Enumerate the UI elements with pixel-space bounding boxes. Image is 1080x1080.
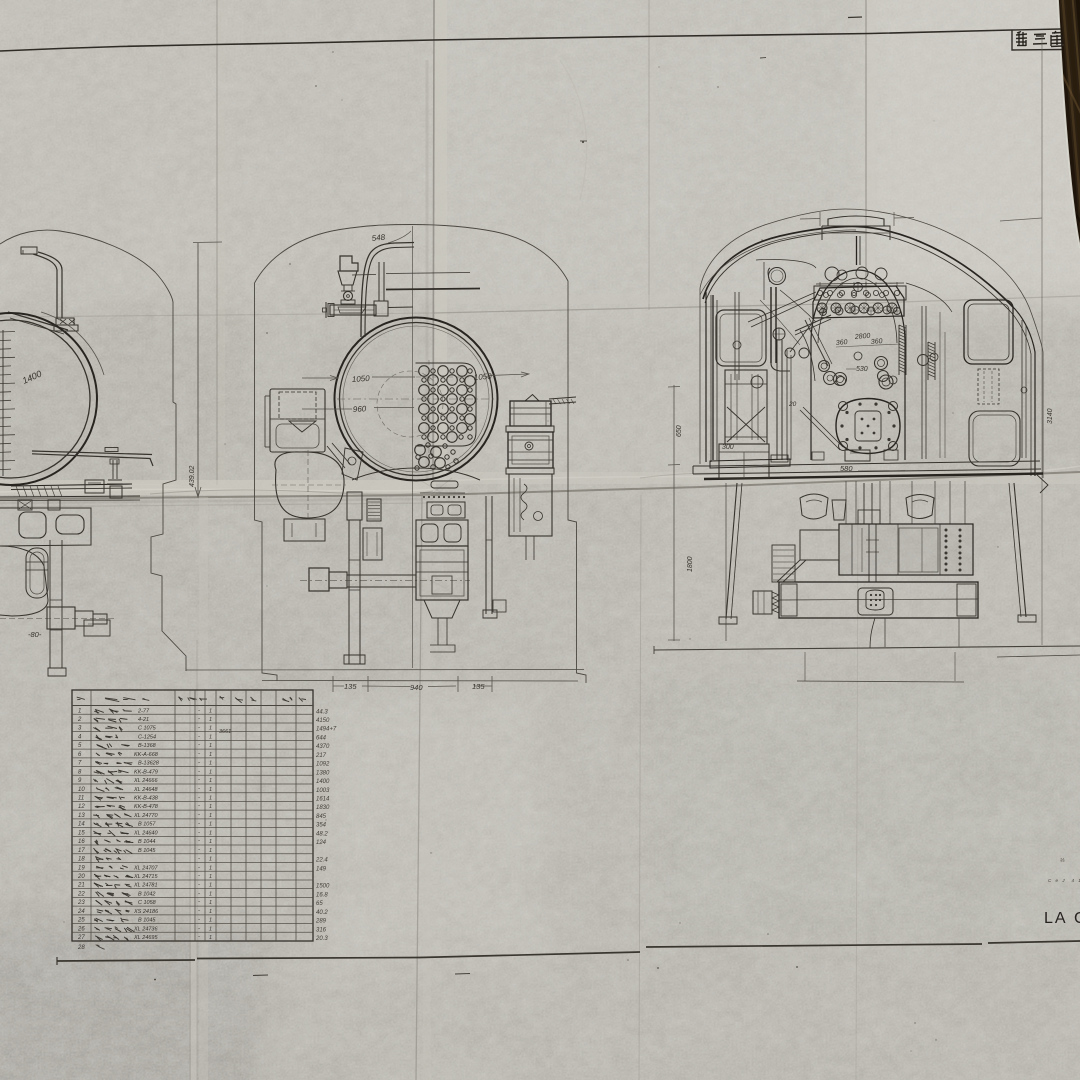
svg-text:13: 13	[78, 813, 85, 819]
svg-text:20: 20	[77, 874, 85, 880]
svg-text:17: 17	[78, 848, 85, 854]
svg-text:3661: 3661	[219, 729, 231, 735]
svg-text:1830: 1830	[316, 805, 330, 811]
svg-text:-: -	[198, 821, 200, 827]
svg-text:1: 1	[209, 804, 212, 810]
svg-text:KK-B-479: KK-B-479	[134, 769, 158, 775]
svg-text:4-21: 4-21	[138, 717, 149, 723]
svg-text:1: 1	[209, 708, 212, 714]
svg-text:-: -	[198, 935, 200, 941]
svg-text:439.02: 439.02	[189, 465, 196, 487]
svg-text:1: 1	[209, 839, 212, 845]
svg-text:C-1254: C-1254	[138, 734, 156, 740]
svg-text:21: 21	[77, 883, 85, 889]
svg-text:22.4: 22.4	[315, 858, 328, 864]
svg-text:-: -	[198, 804, 200, 810]
svg-text:1: 1	[209, 813, 212, 819]
svg-text:C e J 4 1 R: C e J 4 1 R	[1048, 878, 1080, 883]
svg-text:18: 18	[78, 857, 85, 863]
svg-text:B-1368: B-1368	[138, 743, 157, 749]
svg-text:XL 24736: XL 24736	[133, 926, 158, 932]
svg-text:580: 580	[840, 464, 853, 473]
svg-text:65: 65	[316, 901, 323, 907]
svg-text:1: 1	[209, 761, 212, 767]
svg-text:316: 316	[316, 927, 327, 933]
svg-text:XS 24186: XS 24186	[133, 909, 159, 915]
svg-text:-: -	[198, 769, 200, 775]
svg-text:-: -	[198, 786, 200, 792]
svg-text:B 1045: B 1045	[138, 848, 156, 854]
svg-text:11: 11	[78, 796, 84, 802]
svg-text:149: 149	[316, 866, 327, 872]
svg-text:XL 24715: XL 24715	[133, 874, 158, 880]
svg-text:2: 2	[77, 717, 82, 723]
svg-text:-: -	[198, 847, 200, 853]
svg-text:-: -	[198, 839, 200, 845]
svg-text:⅓: ⅓	[1060, 858, 1065, 864]
svg-text:940: 940	[410, 683, 423, 692]
svg-text:1: 1	[209, 848, 212, 854]
svg-text:135: 135	[344, 682, 357, 691]
svg-text:3140: 3140	[1047, 408, 1054, 424]
svg-text:1: 1	[209, 743, 212, 749]
svg-text:-80-: -80-	[28, 630, 42, 639]
svg-text:354: 354	[316, 823, 327, 829]
svg-text:1: 1	[209, 918, 212, 924]
svg-text:XL 24781: XL 24781	[133, 883, 158, 889]
svg-text:10: 10	[78, 787, 85, 793]
svg-text:B-13628: B-13628	[138, 761, 160, 767]
svg-text:644: 644	[316, 735, 327, 741]
svg-text:KK-A-668: KK-A-668	[134, 752, 159, 758]
svg-text:19: 19	[78, 865, 85, 871]
svg-text:300: 300	[722, 444, 734, 451]
svg-text:4150: 4150	[316, 718, 330, 724]
svg-text:1: 1	[209, 891, 212, 897]
svg-text:1003: 1003	[316, 788, 330, 794]
svg-text:289: 289	[315, 919, 327, 925]
svg-text:-: -	[198, 778, 200, 784]
svg-text:124: 124	[316, 840, 327, 846]
svg-text:1: 1	[209, 830, 212, 836]
svg-text:-: -	[198, 812, 200, 818]
svg-text:-: -	[198, 865, 200, 871]
svg-text:XL 24707: XL 24707	[133, 865, 158, 871]
svg-text:24: 24	[77, 909, 85, 915]
svg-text:B 1042: B 1042	[138, 891, 155, 897]
svg-text:548: 548	[371, 233, 386, 243]
svg-text:16: 16	[78, 839, 85, 845]
svg-text:XL 24640: XL 24640	[133, 830, 158, 836]
svg-text:16.8: 16.8	[316, 892, 328, 898]
svg-text:XL 24695: XL 24695	[133, 935, 158, 941]
svg-text:40.2: 40.2	[316, 910, 328, 916]
svg-text:1092: 1092	[316, 762, 330, 768]
svg-text:XL 24770: XL 24770	[133, 813, 158, 819]
svg-text:1: 1	[209, 734, 212, 740]
svg-text:2800: 2800	[854, 333, 871, 341]
svg-text:-: -	[198, 725, 200, 731]
svg-text:1: 1	[209, 726, 212, 732]
svg-text:B 1044: B 1044	[138, 839, 155, 845]
svg-text:48.2: 48.2	[316, 831, 328, 837]
svg-text:1800: 1800	[687, 556, 694, 572]
svg-text:217: 217	[315, 753, 327, 759]
svg-text:-: -	[198, 882, 200, 888]
svg-text:25: 25	[77, 918, 85, 924]
svg-text:360: 360	[836, 339, 848, 347]
svg-text:1494+7: 1494+7	[316, 727, 337, 733]
svg-text:KK-B-478: KK-B-478	[134, 804, 159, 810]
svg-text:-: -	[198, 734, 200, 740]
svg-text:KK-B-438: KK-B-438	[134, 796, 159, 802]
svg-text:-: -	[198, 891, 200, 897]
svg-text:-: -	[198, 830, 200, 836]
svg-text:530: 530	[856, 366, 868, 373]
svg-text:-: -	[198, 751, 200, 757]
svg-text:1: 1	[209, 778, 212, 784]
svg-text:XL 24666: XL 24666	[133, 778, 158, 784]
svg-text:650: 650	[676, 425, 683, 437]
svg-text:-: -	[198, 795, 200, 801]
svg-text:1: 1	[209, 822, 212, 828]
svg-text:-: -	[198, 760, 200, 766]
svg-text:1500: 1500	[316, 884, 330, 890]
svg-text:135: 135	[472, 682, 485, 691]
svg-text:20: 20	[788, 401, 797, 408]
svg-text:1: 1	[209, 883, 212, 889]
svg-text:C 1075: C 1075	[138, 726, 157, 732]
svg-text:-: -	[198, 874, 200, 880]
svg-text:B 1057: B 1057	[138, 822, 156, 828]
svg-text:28: 28	[77, 945, 85, 951]
svg-text:27: 27	[77, 935, 85, 941]
svg-text:2-77: 2-77	[137, 708, 150, 714]
svg-text:1: 1	[209, 909, 212, 915]
svg-text:1: 1	[209, 787, 212, 793]
svg-text:15: 15	[78, 830, 85, 836]
svg-text:20.3: 20.3	[315, 936, 328, 942]
svg-text:1614: 1614	[316, 797, 330, 803]
svg-text:14: 14	[78, 822, 85, 828]
svg-text:1: 1	[209, 717, 212, 723]
svg-text:-: -	[198, 908, 200, 914]
svg-text:B 1045: B 1045	[138, 918, 156, 924]
svg-text:-: -	[198, 900, 200, 906]
svg-text:LA C: LA C	[1044, 910, 1080, 927]
svg-text:12: 12	[78, 804, 85, 810]
svg-text:-: -	[198, 856, 200, 862]
svg-text:23: 23	[77, 900, 85, 906]
svg-text:1: 1	[209, 865, 212, 871]
svg-text:4370: 4370	[316, 744, 330, 750]
svg-text:22: 22	[77, 891, 85, 897]
svg-text:1: 1	[209, 900, 212, 906]
svg-text:1400: 1400	[316, 779, 330, 785]
svg-text:-: -	[198, 708, 200, 714]
svg-text:-: -	[198, 917, 200, 923]
svg-text:1380: 1380	[316, 770, 330, 776]
svg-text:1: 1	[209, 857, 212, 863]
svg-text:1: 1	[209, 769, 212, 775]
svg-text:-: -	[198, 926, 200, 932]
svg-text:1: 1	[209, 874, 212, 880]
svg-text:960: 960	[353, 404, 367, 414]
svg-text:26: 26	[77, 926, 85, 932]
svg-text:-: -	[198, 717, 200, 723]
svg-text:1: 1	[209, 752, 212, 758]
svg-text:1: 1	[209, 935, 212, 941]
svg-text:44.3: 44.3	[316, 709, 328, 715]
svg-text:1: 1	[209, 796, 212, 802]
svg-text:1050: 1050	[352, 374, 371, 384]
svg-text:XL 24648: XL 24648	[133, 787, 158, 793]
svg-text:C 1058: C 1058	[138, 900, 157, 906]
svg-text:1: 1	[78, 708, 81, 714]
svg-text:845: 845	[316, 814, 327, 820]
svg-text:-: -	[198, 743, 200, 749]
svg-text:1: 1	[209, 926, 212, 932]
